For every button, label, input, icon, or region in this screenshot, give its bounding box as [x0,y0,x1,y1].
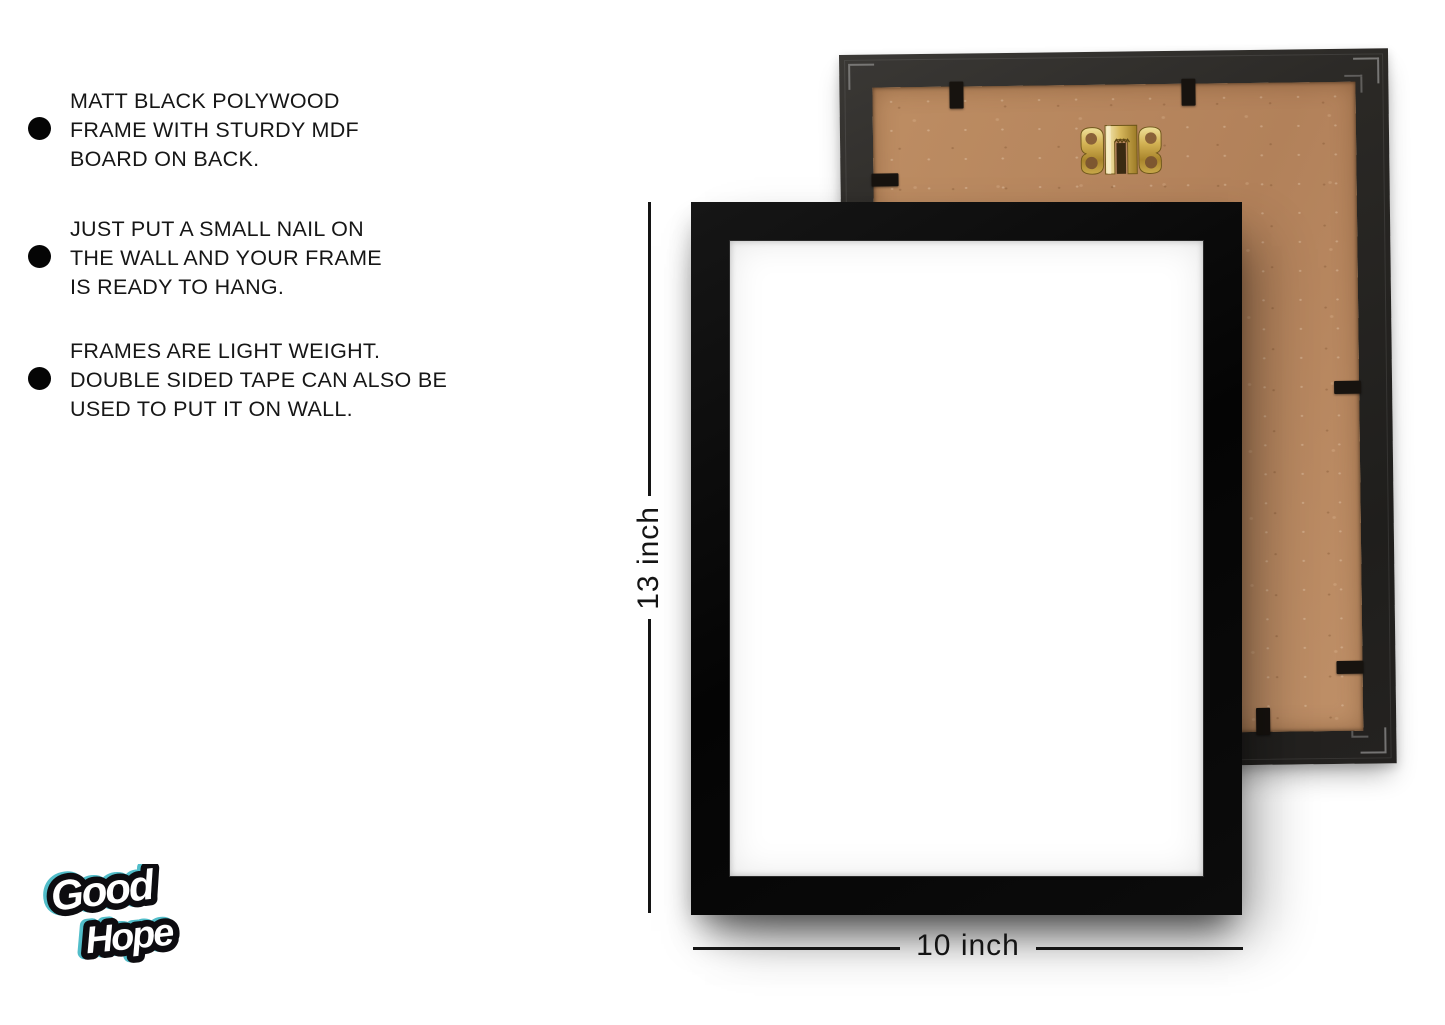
feature-item-weight: FRAMES ARE LIGHT WEIGHT. DOUBLE SIDED TA… [70,337,447,424]
feature-line: BOARD ON BACK. [70,145,359,174]
feature-line: DOUBLE SIDED TAPE CAN ALSO BE [70,366,447,395]
flexi-tab [1256,708,1270,735]
bullet-dot [28,367,51,390]
feature-line: FRAMES ARE LIGHT WEIGHT. [70,337,447,366]
flexi-tab [1334,381,1361,394]
vnail-corner-mark [848,64,874,90]
feature-item-material: MATT BLACK POLYWOOD FRAME WITH STURDY MD… [70,87,359,174]
feature-line: MATT BLACK POLYWOOD [70,87,359,116]
feature-line: JUST PUT A SMALL NAIL ON [70,215,382,244]
height-dimension-label: 13 inch [632,506,666,610]
dimension-line [648,619,651,913]
product-infographic: MATT BLACK POLYWOOD FRAME WITH STURDY MD… [0,0,1445,1025]
feature-line: USED TO PUT IT ON WALL. [70,395,447,424]
sawtooth-hanger-icon [1079,123,1164,178]
vnail-corner-mark [1360,727,1386,753]
flexi-tab [949,81,963,108]
flexi-tab [1181,79,1195,106]
flexi-tab [871,173,898,186]
feature-item-hanging: JUST PUT A SMALL NAIL ON THE WALL AND YO… [70,215,382,302]
dimension-line [1036,947,1243,950]
feature-line: THE WALL AND YOUR FRAME [70,244,382,273]
feature-line: FRAME WITH STURDY MDF [70,116,359,145]
svg-text:Hope: Hope [83,911,176,962]
feature-line: IS READY TO HANG. [70,273,382,302]
height-dimension: 13 inch [630,202,668,913]
frame-blank-mount [729,240,1204,877]
brand-logo-good-hope: Good Hope Good Hope Good Hope [40,864,200,974]
dimension-line [693,947,900,950]
frame-front-view [691,202,1242,915]
dimension-line [648,202,651,496]
bullet-dot [28,245,51,268]
bullet-dot [28,117,51,140]
width-dimension-label: 10 inch [916,929,1020,963]
width-dimension: 10 inch [693,929,1243,967]
vnail-corner-mark [1353,57,1379,83]
flexi-tab [1336,661,1363,674]
svg-text:Good: Good [48,864,158,920]
